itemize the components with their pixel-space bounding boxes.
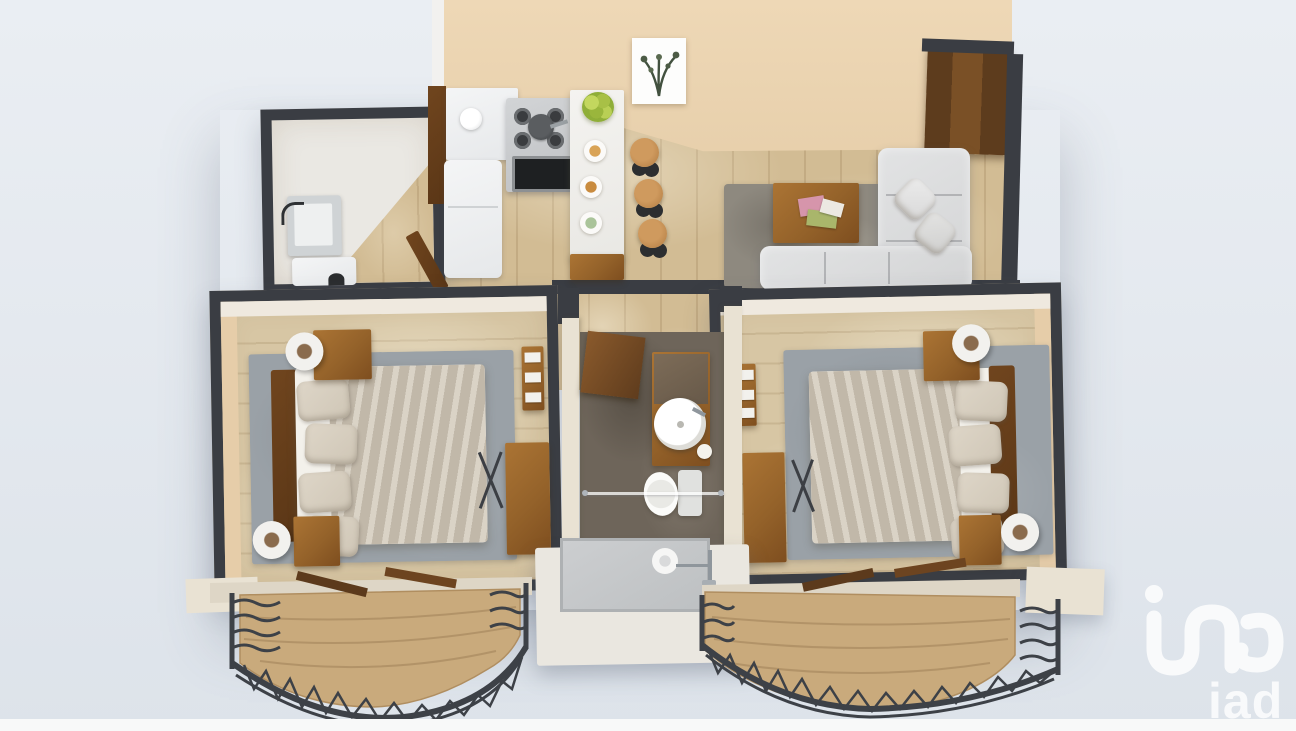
laundry-room: [260, 106, 445, 295]
utility-sink: [287, 195, 342, 256]
towel-stack: [525, 372, 541, 382]
shower-tray: [560, 538, 710, 612]
bathroom-wall-east: [724, 306, 742, 568]
vanity-counter: [654, 354, 708, 404]
gas-stove: [506, 98, 574, 192]
entry-door: [924, 47, 1012, 156]
wall-art: [632, 38, 686, 104]
round-basin: [654, 398, 706, 450]
wall-art-plant-icon: [632, 38, 686, 104]
washing-machine: [292, 257, 356, 286]
breakfast-bar-base: [570, 254, 624, 280]
balcony-left: [140, 555, 580, 731]
balcony-right: [690, 555, 1090, 731]
duvet-right: [809, 369, 963, 544]
wall-end-face: [432, 0, 444, 94]
burner-icon: [514, 132, 531, 149]
bedroom-left-wall-face-north: [221, 296, 547, 317]
oven-window: [512, 156, 574, 192]
soap-dispenser-icon: [697, 444, 712, 459]
luggage-rack-icon: [789, 457, 816, 516]
shower-drain-icon: [652, 548, 678, 574]
basin-drain-icon: [677, 421, 684, 428]
refrigerator-seam: [448, 206, 498, 208]
place-setting: [580, 212, 602, 234]
bar-stool: [630, 138, 659, 167]
refrigerator: [444, 160, 502, 278]
coffee-maker-icon: [460, 108, 482, 130]
sofa-seam: [824, 252, 826, 284]
iad-logo-icon: [1145, 585, 1276, 668]
towel-stack: [524, 352, 540, 362]
glass-hinge-icon: [582, 490, 588, 496]
floorplan-render: iad: [0, 0, 1296, 731]
sideboard: [505, 442, 551, 555]
fruit-bowl: [582, 92, 614, 122]
open-french-door: [894, 558, 967, 578]
bedroom-left-wall-face-west: [221, 302, 242, 585]
bedroom-right: [709, 282, 1067, 586]
bedroom-left: [209, 285, 562, 596]
ladder-shelf: [521, 346, 544, 410]
iad-watermark: iad: [1136, 580, 1294, 728]
washing-machine-door-icon: [328, 273, 344, 285]
bathroom-open-door: [580, 331, 645, 400]
balcony-deck: [705, 592, 1015, 708]
sofa-seam: [888, 252, 890, 284]
railing-ladder-right: [1020, 599, 1058, 675]
bottom-strip: [0, 719, 1296, 731]
bed-pillow: [957, 472, 1010, 514]
bed-pillow: [954, 380, 1008, 422]
towel-stack: [525, 392, 541, 402]
shower-glass-partition: [584, 492, 724, 495]
bed-pillow: [298, 470, 353, 514]
balcony-deck: [240, 589, 520, 707]
place-setting: [580, 176, 602, 198]
coffee-table: [773, 183, 859, 243]
place-setting: [584, 140, 606, 162]
bedroom-right-wall-face-north: [720, 294, 1050, 316]
bar-stool: [638, 219, 667, 248]
glass-hinge-icon: [718, 490, 724, 496]
bar-stool: [634, 179, 663, 208]
bed-pillow: [948, 423, 1003, 467]
luggage-rack-icon: [476, 448, 505, 512]
bathroom-wall-west: [562, 318, 579, 558]
bed-pillow: [304, 423, 357, 465]
bed-pillow: [296, 378, 351, 422]
utility-faucet-icon: [281, 202, 304, 225]
